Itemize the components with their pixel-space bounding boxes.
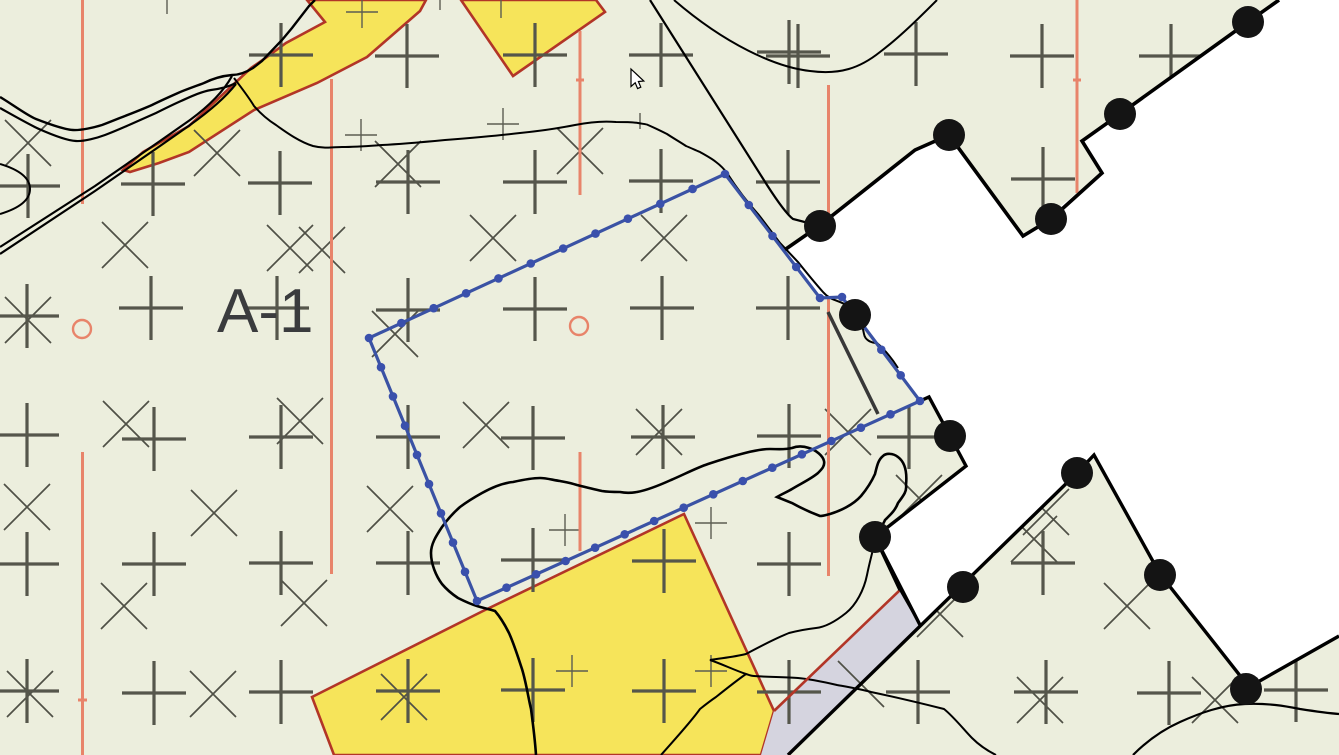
svg-text:A-1: A-1 (217, 277, 313, 346)
